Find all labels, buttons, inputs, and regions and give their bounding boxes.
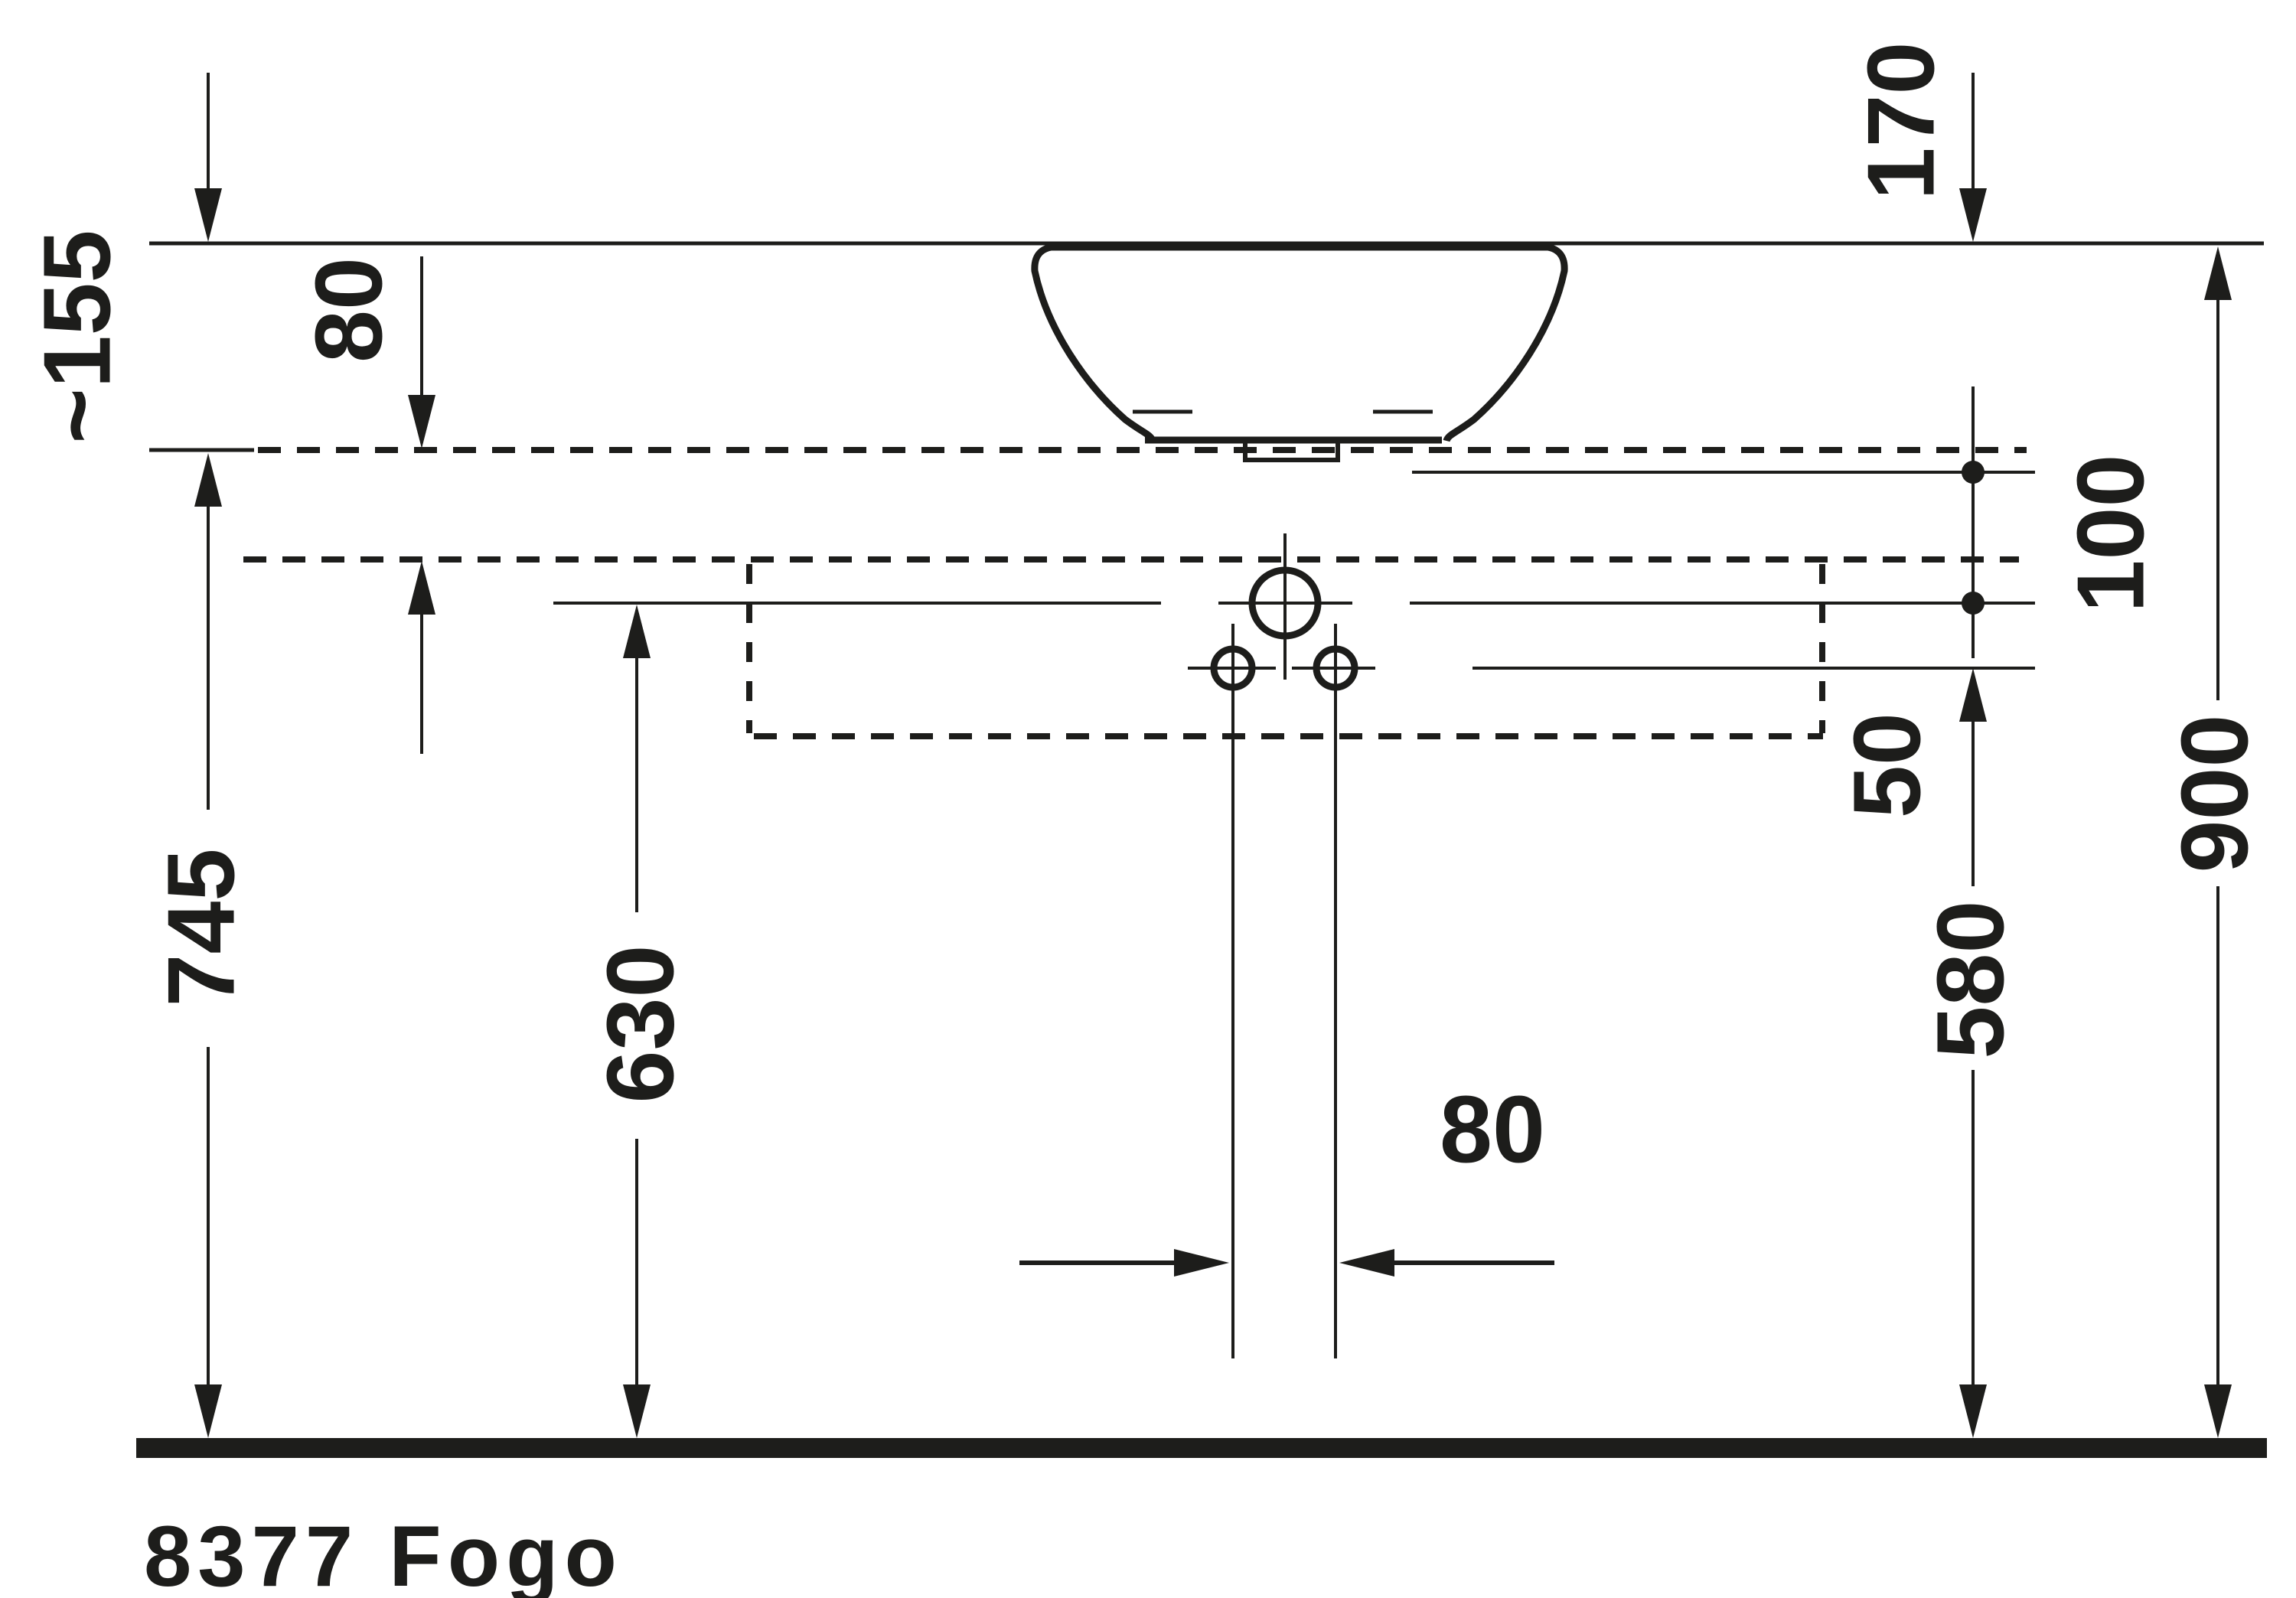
- dim-900-arrow-up-icon: [2204, 246, 2232, 300]
- label-50: 50: [1835, 713, 1940, 818]
- dim-580-arrow-down-icon: [1959, 1384, 1987, 1438]
- dimension-80-left: [408, 256, 435, 754]
- label-900: 900: [2162, 715, 2268, 873]
- dim-745-arrow-up-icon: [194, 453, 222, 507]
- dim-155-arrow-down-icon: [194, 188, 222, 242]
- basin-outline: [1035, 246, 1564, 441]
- dim-630-arrow-down-icon: [623, 1384, 651, 1438]
- mounting-holes: [1214, 533, 1355, 1358]
- label-155: ~155: [24, 230, 130, 443]
- reference-lines: [136, 243, 2267, 1458]
- label-80-bottom: 80: [1440, 1077, 1545, 1182]
- dim-630-arrow-up-icon: [623, 605, 651, 658]
- label-170: 170: [1848, 42, 1954, 201]
- dimension-155: [194, 73, 222, 242]
- dim-80-arrow-up-icon: [408, 561, 435, 615]
- chain-dot-lower: [1962, 592, 1985, 615]
- dim-50-arrow-up-icon: [1959, 668, 1987, 722]
- dashed-lines: [243, 450, 2027, 736]
- floor-line: [136, 1438, 2267, 1458]
- dimension-80-bottom: [1019, 1249, 1554, 1277]
- dim-745-arrow-down-icon: [194, 1384, 222, 1438]
- dimension-170-chain: [1959, 73, 1987, 722]
- dim-900-arrow-down-icon: [2204, 1384, 2232, 1438]
- label-630: 630: [588, 945, 693, 1104]
- label-580: 580: [1918, 901, 2024, 1059]
- dimension-labels: ~155 80 170 100 50 745 630 580 900 80: [24, 42, 2268, 1183]
- dim-80b-arrow-right-icon: [1174, 1249, 1229, 1277]
- chain-dot-upper: [1962, 461, 1985, 484]
- dimension-drawing: ~155 80 170 100 50 745 630 580 900 80 83…: [0, 0, 2296, 1598]
- label-100: 100: [2058, 455, 2164, 613]
- dim-80b-arrow-left-icon: [1339, 1249, 1394, 1277]
- dim-170-arrow-down-icon: [1959, 188, 1987, 242]
- washbasin: [1035, 246, 1564, 460]
- dimension-580: [1959, 720, 1987, 1438]
- dim-80-arrow-down-icon: [408, 395, 435, 448]
- drawing-sheet: ~155 80 170 100 50 745 630 580 900 80 83…: [0, 0, 2296, 1598]
- label-80-left: 80: [296, 257, 402, 363]
- label-745: 745: [148, 849, 254, 1007]
- product-code-label: 8377 Fogo: [144, 1508, 623, 1598]
